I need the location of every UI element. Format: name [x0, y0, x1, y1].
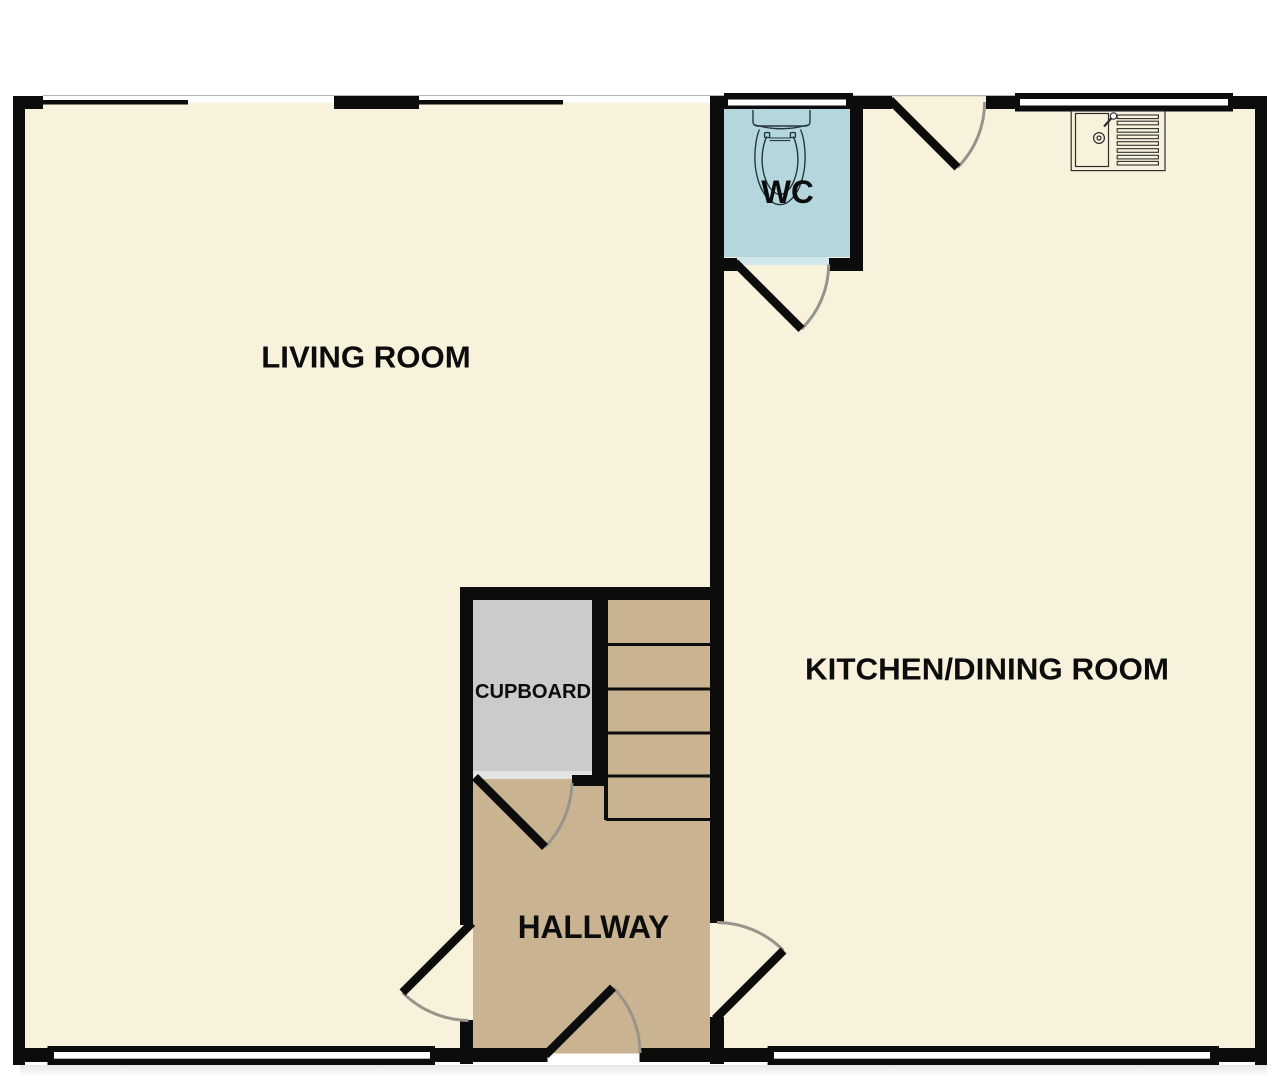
svg-text:HALLWAY: HALLWAY — [518, 909, 670, 945]
svg-text:CUPBOARD: CUPBOARD — [475, 681, 591, 703]
svg-text:LIVING ROOM: LIVING ROOM — [261, 340, 471, 375]
svg-text:KITCHEN/DINING ROOM: KITCHEN/DINING ROOM — [805, 651, 1169, 686]
svg-text:WC: WC — [761, 174, 814, 210]
